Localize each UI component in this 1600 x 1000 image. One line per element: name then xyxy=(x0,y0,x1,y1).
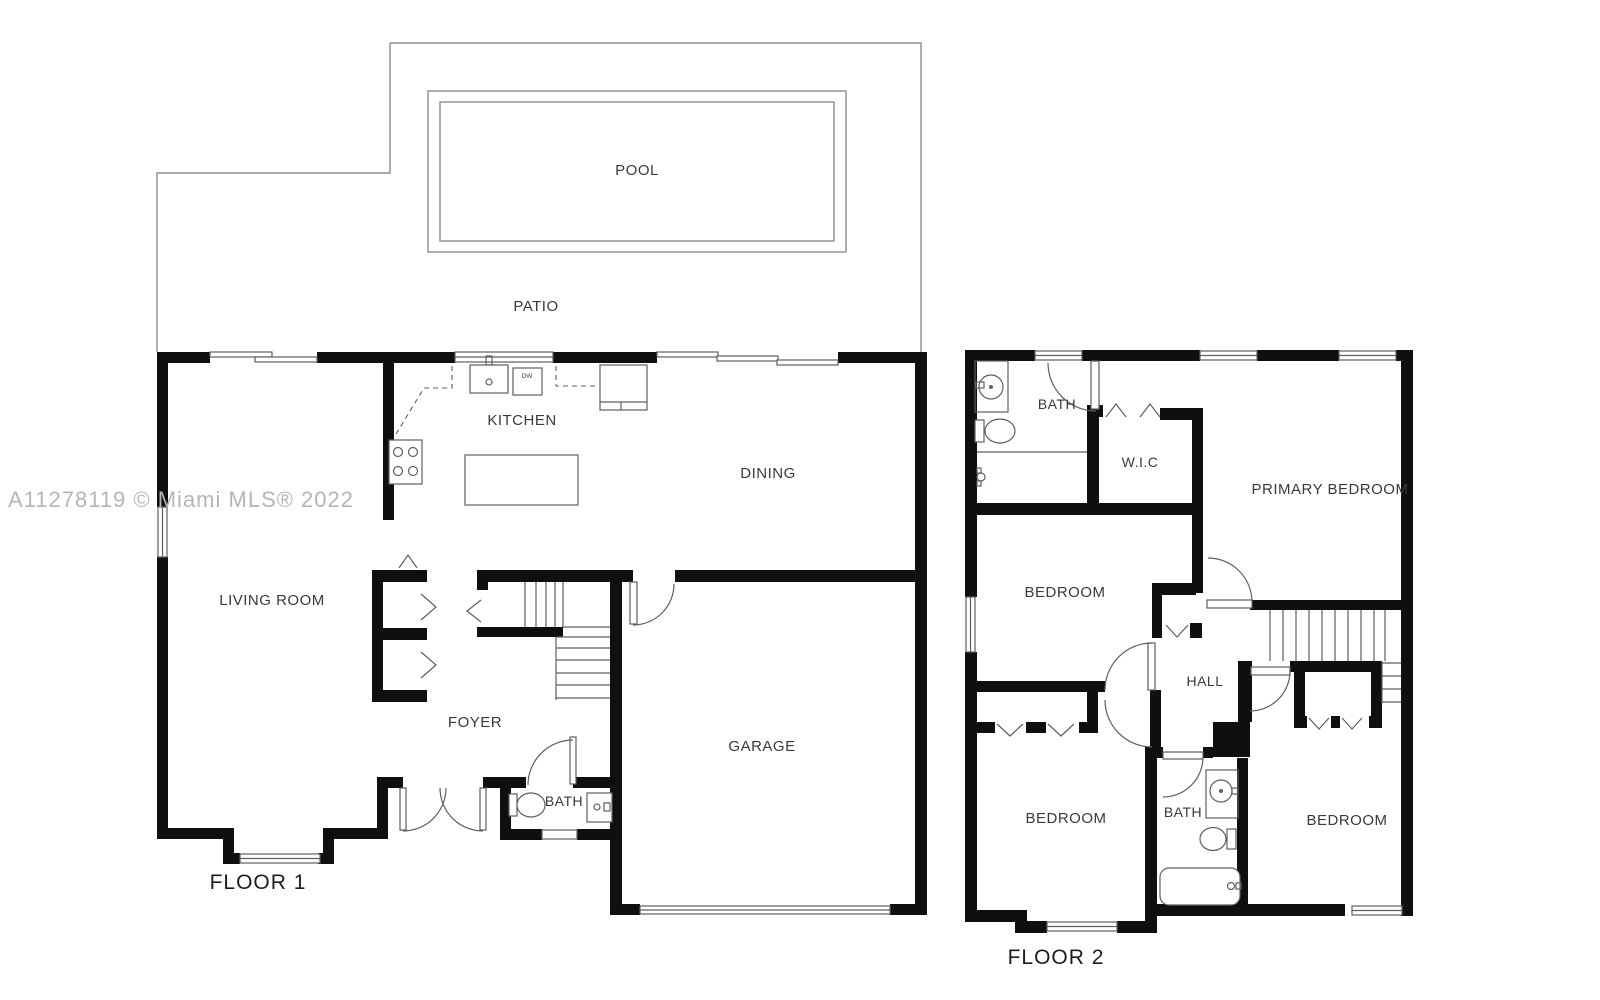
door-arc xyxy=(440,788,483,831)
wall xyxy=(890,904,915,915)
kitchen-fixtures: DW xyxy=(389,356,647,505)
closet-chevron xyxy=(1166,625,1188,637)
wall xyxy=(372,628,427,640)
sink-icon xyxy=(587,793,612,822)
toilet-icon xyxy=(975,419,1015,443)
toilet-icon xyxy=(509,793,545,817)
wall xyxy=(1369,716,1382,728)
floor-plan-page: POOL PATIO xyxy=(0,0,1600,1000)
window xyxy=(240,854,320,863)
wall xyxy=(1087,405,1099,515)
wall xyxy=(500,829,542,840)
floor1-title: FLOOR 1 xyxy=(210,871,307,894)
wall xyxy=(157,557,168,839)
wall xyxy=(553,352,657,363)
dishwasher-label: DW xyxy=(522,373,534,380)
window xyxy=(455,352,553,362)
room-label-patio: PATIO xyxy=(513,298,558,315)
window xyxy=(542,830,577,839)
room-label-bath-f1: BATH xyxy=(545,793,583,809)
window xyxy=(1200,351,1257,360)
wall xyxy=(965,681,1105,692)
closet-chevron xyxy=(399,555,417,568)
room-label-bath-top: BATH xyxy=(1038,396,1076,412)
wall xyxy=(1401,350,1413,916)
wall xyxy=(1257,350,1339,361)
room-label-dining: DINING xyxy=(740,465,796,482)
room-label-bath-bottom: BATH xyxy=(1164,804,1202,820)
sliding-door xyxy=(657,352,838,365)
garage-door xyxy=(640,906,890,914)
wall xyxy=(317,352,455,363)
window xyxy=(1352,906,1402,915)
stair-direction-chevron xyxy=(467,600,481,622)
wall xyxy=(915,352,927,915)
wall xyxy=(577,829,610,840)
wall xyxy=(477,627,563,637)
closet-chevron xyxy=(421,652,436,678)
closet-chevron xyxy=(997,724,1023,736)
wall xyxy=(1145,747,1157,933)
room-label-living-room: LIVING ROOM xyxy=(219,592,325,609)
closet-chevron xyxy=(1106,404,1126,417)
room-label-bedroom-bottom-left: BEDROOM xyxy=(1025,810,1106,827)
closet-chevron xyxy=(1309,718,1329,729)
door-arc xyxy=(1208,558,1252,602)
wall xyxy=(1147,747,1163,758)
garage-entry-door xyxy=(630,582,674,625)
floor2-bath-top-fixtures xyxy=(975,361,1087,486)
wall xyxy=(1157,904,1345,916)
wall xyxy=(1290,661,1382,672)
door-arc xyxy=(633,584,674,625)
wall xyxy=(1015,921,1047,933)
closet-chevron xyxy=(1342,718,1362,729)
wall xyxy=(1250,600,1413,610)
wall xyxy=(610,570,622,915)
room-label-pool: POOL xyxy=(615,162,659,179)
sliding-door xyxy=(210,352,317,362)
wall xyxy=(157,828,229,839)
bedroom-left-door xyxy=(1105,643,1155,690)
patio-area: POOL PATIO xyxy=(157,43,921,352)
floor2-title: FLOOR 2 xyxy=(1008,946,1105,969)
floor2-windows xyxy=(966,351,1402,931)
door-arc xyxy=(403,788,446,831)
stove-icon xyxy=(389,440,422,484)
door-arc xyxy=(528,740,573,785)
window xyxy=(966,597,975,652)
door-arc xyxy=(1105,643,1152,690)
wall xyxy=(157,352,168,507)
wall xyxy=(372,690,427,702)
room-label-foyer: FOYER xyxy=(448,714,502,731)
primary-bedroom-door xyxy=(1207,558,1252,608)
entry-double-door xyxy=(400,788,486,831)
floor2-walls xyxy=(965,350,1413,933)
window xyxy=(1035,351,1082,360)
wall xyxy=(1294,716,1307,728)
floor-plan-drawing: POOL PATIO xyxy=(0,0,1600,1000)
door-arc xyxy=(1163,757,1203,797)
wall xyxy=(223,853,240,864)
bathtub-icon xyxy=(1160,868,1241,905)
closet-chevron xyxy=(1140,404,1160,417)
wall xyxy=(372,570,427,582)
wall xyxy=(675,570,915,582)
floor2-bath-bottom-fixtures xyxy=(1160,770,1241,905)
window xyxy=(1047,922,1117,931)
wall xyxy=(965,652,977,922)
bedroom-bottom-left-door xyxy=(1105,700,1152,747)
closet-chevron xyxy=(421,594,436,620)
upper-cabinet-dashed xyxy=(396,366,452,434)
wall xyxy=(477,570,633,582)
wall xyxy=(1190,623,1202,638)
wall xyxy=(1192,408,1203,593)
room-label-bedroom-left: BEDROOM xyxy=(1024,584,1105,601)
room-label-garage: GARAGE xyxy=(728,738,795,755)
kitchen-island xyxy=(465,455,578,505)
wall xyxy=(1294,672,1305,716)
dishwasher-icon: DW xyxy=(513,368,542,395)
room-label-primary-bedroom: PRIMARY BEDROOM xyxy=(1252,481,1409,498)
refrigerator-icon xyxy=(600,365,647,410)
upper-cabinet-dashed xyxy=(556,366,598,386)
bedroom-bottom-right-door xyxy=(1250,667,1290,711)
wall xyxy=(1203,747,1213,758)
wall xyxy=(965,503,1203,515)
room-label-bedroom-bottom-right: BEDROOM xyxy=(1306,812,1387,829)
chase-block xyxy=(1213,722,1250,757)
bath-bottom-door xyxy=(1163,752,1203,797)
room-label-kitchen: KITCHEN xyxy=(487,412,556,429)
closet-chevron xyxy=(1048,724,1074,736)
window xyxy=(1339,351,1396,360)
tub-faucet-icon xyxy=(977,468,985,486)
vanity-sink-icon xyxy=(975,361,1008,412)
wall xyxy=(377,777,403,788)
room-label-wic: W.I.C xyxy=(1122,454,1159,470)
wall xyxy=(1152,583,1162,638)
wall xyxy=(1026,722,1046,733)
bath-door xyxy=(528,737,576,785)
wall xyxy=(1238,661,1252,722)
floor1-stairs xyxy=(467,582,610,700)
vanity-sink-icon xyxy=(1206,770,1238,818)
wall xyxy=(838,352,927,363)
door-arc xyxy=(1250,671,1290,711)
wall xyxy=(1371,672,1382,716)
wall xyxy=(965,722,995,733)
wall xyxy=(477,582,488,590)
window xyxy=(158,507,167,557)
wall xyxy=(610,904,640,915)
wall xyxy=(1087,692,1098,733)
door-arc xyxy=(1105,700,1152,747)
wall xyxy=(1331,716,1340,728)
mls-watermark: A11278119 © Miami MLS® 2022 xyxy=(8,487,354,512)
wall xyxy=(573,777,610,788)
toilet-icon xyxy=(1200,828,1236,851)
room-label-hall: HALL xyxy=(1186,673,1223,689)
wall xyxy=(1082,350,1200,361)
